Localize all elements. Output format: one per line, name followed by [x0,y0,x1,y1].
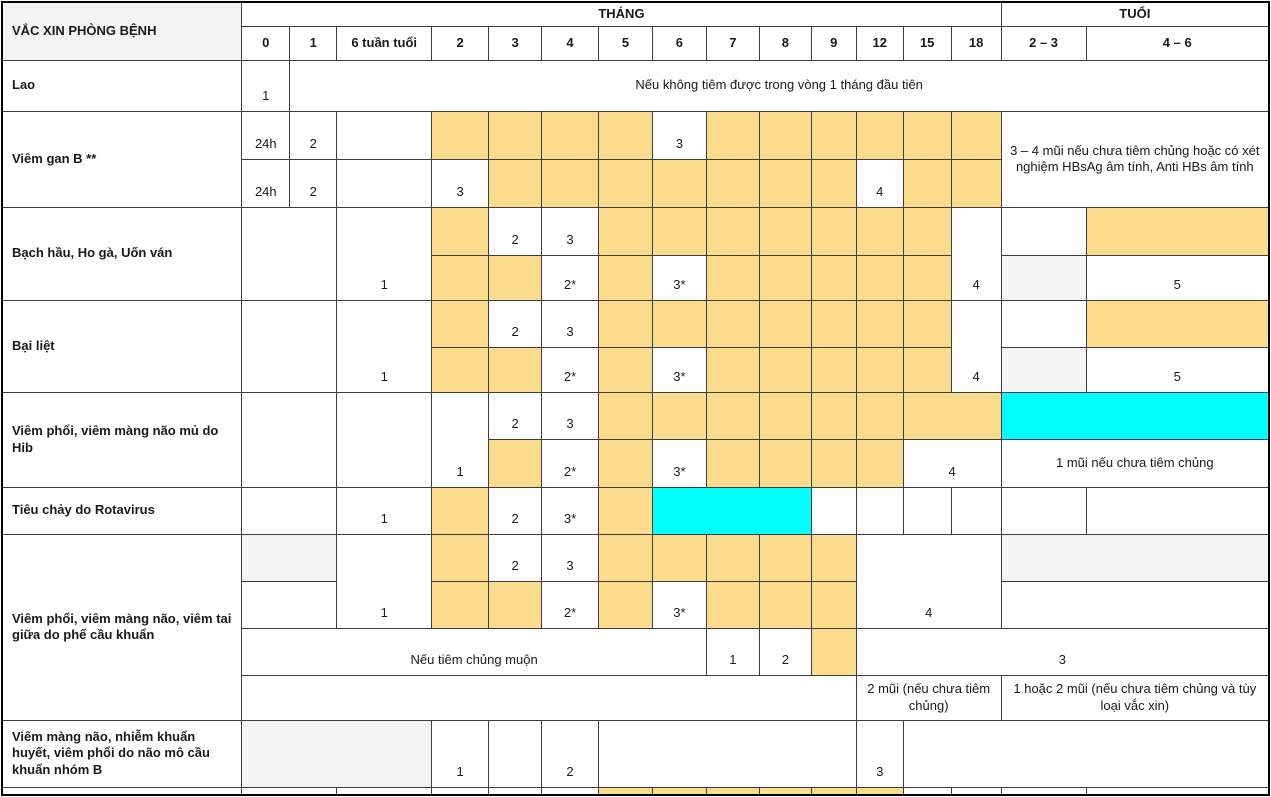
cell-vgb-a-9 [706,111,759,159]
cell-bailiet-a-4: 2 [489,300,542,347]
cell-phecau-b-2 [489,581,542,628]
cell-bailiet-a-15 [1086,300,1269,347]
cell-phecau-b-4 [599,581,653,628]
cell-bailiet-a-12 [903,300,951,347]
cell-rota-9 [856,487,903,534]
cell-bailiet-b-1 [489,347,542,392]
cell-hib-b-0 [489,439,542,487]
cell-vgb-b-2 [337,159,432,207]
cell-hib-a-8 [706,392,759,439]
cell-cutoff-6 [599,787,653,795]
cell-bailiet-b-2: 2* [542,347,599,392]
cell-bachhau-b-0 [432,255,489,300]
cell-bailiet-a-10 [811,300,856,347]
cell-vgb-b-10 [811,159,856,207]
cell-hib-b-7 [856,439,903,487]
cell-phecau-b-6 [706,581,759,628]
cell-cutoff-3 [432,787,489,795]
cell-vgb-b-6 [599,159,653,207]
cell-bailiet-b-7 [811,347,856,392]
cell-bailiet-a-1 [242,300,337,392]
highlight-hib-catchup [1001,392,1269,439]
cell-bachhau-b-7 [811,255,856,300]
cell-phecau-a-9 [759,534,811,581]
cell-bachhau-a-11 [856,207,903,255]
header-6-weeks: 6 tuần tuổi [337,26,432,60]
cell-cutoff-2 [337,787,432,795]
cell-bailiet-a-2: 1 [337,300,432,392]
cell-bailiet-a-5: 3 [542,300,599,347]
cell-rota-4: 2 [489,487,542,534]
cell-naomocau-b-4: 2 [542,720,599,787]
row-label-rotavirus: Tiêu chảy do Rotavirus [2,487,242,534]
cell-vgb-a-3 [337,111,432,159]
note-hib: 1 mũi nếu chưa tiêm chủng [1001,439,1269,487]
cell-phecau-d-0 [242,675,856,720]
header-month-6: 6 [652,26,706,60]
cell-hib-b-1: 2* [542,439,599,487]
header-vaccine-column: VẮC XIN PHÒNG BỆNH [2,2,242,60]
cell-rota-3 [432,487,489,534]
row-label-bai-liet: Bại liệt [2,300,242,392]
cell-bailiet-b-9 [903,347,951,392]
cell-phecau-b-3: 2* [542,581,599,628]
cell-hib-a-5: 3 [542,392,599,439]
cell-cutoff-10 [811,787,856,795]
cell-vgb-a-11 [811,111,856,159]
cell-bachhau-b-11: 5 [1086,255,1269,300]
cell-bachhau-a-15 [1086,207,1269,255]
cell-rota-10 [903,487,951,534]
row-label-viem-gan-b: Viêm gan B ** [2,111,242,207]
cell-bachhau-b-4: 3* [652,255,706,300]
header-group-age: TUỔI [1001,2,1269,26]
cell-rota-11 [951,487,1001,534]
note-phe-cau-2-doses: 2 mũi (nếu chưa tiêm chủng) [856,675,1001,720]
cell-hib-a-12 [903,392,1001,439]
cell-bachhau-b-6 [759,255,811,300]
cell-bachhau-a-10 [811,207,856,255]
cell-vgb-a-4 [432,111,489,159]
cell-hib-a-7 [652,392,706,439]
cell-bachhau-b-3 [599,255,653,300]
cell-vgb-b-4 [489,159,542,207]
header-month-5: 5 [599,26,653,60]
cell-hib-a-4: 2 [489,392,542,439]
cell-hib-a-2 [337,392,432,487]
cell-bailiet-a-8 [706,300,759,347]
cell-cutoff-9 [759,787,811,795]
cell-bailiet-b-5 [706,347,759,392]
row-label-hib: Viêm phổi, viêm màng não mủ do Hib [2,392,242,487]
note-phe-cau-late: Nếu tiêm chủng muộn [242,628,707,675]
cell-hib-a-9 [759,392,811,439]
note-lao: Nếu không tiêm được trong vòng 1 tháng đ… [290,60,1269,111]
cell-cutoff-1 [242,787,337,795]
row-label-phe-cau: Viêm phổi, viêm màng não, viêm tai giữa … [2,534,242,720]
cell-hib-a-1 [242,392,337,487]
cell-vgb-b-1: 2 [290,159,337,207]
cell-phecau-a-8 [706,534,759,581]
cell-vgb-a-7 [599,111,653,159]
vaccination-schedule-table: VẮC XIN PHÒNG BỆNHTHÁNGTUỔI016 tuần tuổi… [1,1,1270,796]
cell-naomocau-b-1 [242,720,432,787]
cell-vgb-a-5 [489,111,542,159]
cell-bailiet-a-14 [1001,300,1086,347]
cell-phecau-a-10 [811,534,856,581]
cell-naomocau-b-5 [599,720,857,787]
cell-phecau-c-2: 2 [759,628,811,675]
cell-bachhau-a-3 [432,207,489,255]
cell-bachhau-a-13: 4 [951,207,1001,300]
cell-hib-b-3: 3* [652,439,706,487]
cell-cutoff-12 [903,787,951,795]
cell-phecau-a-11: 4 [856,534,1001,628]
cell-rota-1 [242,487,337,534]
cell-vgb-b-0: 24h [242,159,290,207]
row-label-lao: Lao [2,60,242,111]
cell-cutoff-13 [951,787,1001,795]
cell-vgb-b-3: 3 [432,159,489,207]
cell-rota-6 [599,487,653,534]
cell-hib-a-10 [811,392,856,439]
cell-phecau-b-1 [432,581,489,628]
cell-hib-a-3: 1 [432,392,489,487]
header-age-4-6: 4 – 6 [1086,26,1269,60]
cell-bailiet-b-11: 5 [1086,347,1269,392]
cell-phecau-a-5: 3 [542,534,599,581]
cell-vgb-b-8 [706,159,759,207]
cell-bailiet-b-3 [599,347,653,392]
cell-bailiet-b-10 [1001,347,1086,392]
cell-cutoff-8 [706,787,759,795]
vaccination-schedule-page: VẮC XIN PHÒNG BỆNHTHÁNGTUỔI016 tuần tuổi… [1,1,1270,796]
cell-phecau-c-4: 3 [856,628,1269,675]
cell-hib-a-11 [856,392,903,439]
header-month-4: 4 [542,26,599,60]
cell-rota-2: 1 [337,487,432,534]
highlight-rota-window [652,487,811,534]
cell-bailiet-b-4: 3* [652,347,706,392]
cell-cutoff-0 [2,787,242,795]
header-month-1: 1 [290,26,337,60]
cell-phecau-b-8 [811,581,856,628]
cell-cutoff-4 [489,787,542,795]
cell-bachhau-a-8 [706,207,759,255]
cell-naomocau-b-7 [903,720,1269,787]
header-month-0: 0 [242,26,290,60]
cell-bachhau-b-10 [1001,255,1086,300]
cell-vgb-b-9 [759,159,811,207]
cell-phecau-a-2: 1 [337,534,432,628]
cell-rota-12 [1001,487,1086,534]
cell-phecau-a-12 [1001,534,1269,581]
header-month-2: 2 [432,26,489,60]
header-month-18: 18 [951,26,1001,60]
cell-bailiet-a-3 [432,300,489,347]
cell-hib-b-8: 4 [903,439,1001,487]
cell-vgb-b-11: 4 [856,159,903,207]
note-phe-cau-1-2-doses: 1 hoặc 2 mũi (nếu chưa tiêm chủng và tùy… [1001,675,1269,720]
cell-cutoff-11 [856,787,903,795]
header-month-3: 3 [489,26,542,60]
cell-bachhau-a-2: 1 [337,207,432,300]
cell-naomocau-b-6: 3 [856,720,903,787]
cell-hib-a-6 [599,392,653,439]
cell-bachhau-b-5 [706,255,759,300]
cell-phecau-b-9 [1001,581,1269,628]
cell-bachhau-b-1 [489,255,542,300]
cell-phecau-b-0 [242,581,337,628]
cell-vgb-b-13 [951,159,1001,207]
cell-bachhau-a-6 [599,207,653,255]
cell-vgb-a-13 [903,111,951,159]
cell-bailiet-b-8 [856,347,903,392]
cell-bachhau-a-5: 3 [542,207,599,255]
cell-vgb-a-12 [856,111,903,159]
cell-bachhau-b-2: 2* [542,255,599,300]
cell-bachhau-b-8 [856,255,903,300]
cell-bailiet-a-11 [856,300,903,347]
header-month-12: 12 [856,26,903,60]
cell-bachhau-a-9 [759,207,811,255]
header-month-8: 8 [759,26,811,60]
cell-vgb-a-6 [542,111,599,159]
cell-naomocau-b-3 [489,720,542,787]
cell-cutoff-5 [542,787,599,795]
cell-vgb-a-10 [759,111,811,159]
cell-bachhau-a-12 [903,207,951,255]
cell-rota-5: 3* [542,487,599,534]
cell-bailiet-a-6 [599,300,653,347]
cell-cutoff-15 [1086,787,1269,795]
cell-bailiet-a-9 [759,300,811,347]
cell-rota-13 [1086,487,1269,534]
header-month-9: 9 [811,26,856,60]
header-group-months: THÁNG [242,2,1001,26]
cell-hib-b-4 [706,439,759,487]
cell-vgb-b-12 [903,159,951,207]
cell-phecau-a-7 [652,534,706,581]
cell-bachhau-a-14 [1001,207,1086,255]
cell-naomocau-b-2: 1 [432,720,489,787]
cell-vgb-a-8: 3 [652,111,706,159]
cell-phecau-a-6 [599,534,653,581]
header-month-7: 7 [706,26,759,60]
row-label-bach-hau: Bạch hầu, Ho gà, Uốn ván [2,207,242,300]
cell-bailiet-a-7 [652,300,706,347]
cell-vgb-a-1: 24h [242,111,290,159]
cell-phecau-c-1: 1 [706,628,759,675]
cell-vgb-b-5 [542,159,599,207]
cell-bachhau-a-4: 2 [489,207,542,255]
cell-bailiet-a-13: 4 [951,300,1001,392]
cell-bachhau-a-7 [652,207,706,255]
cell-rota-8 [811,487,856,534]
cell-bachhau-a-1 [242,207,337,300]
cell-hib-b-6 [811,439,856,487]
cell-bailiet-b-0 [432,347,489,392]
row-label-nao-mo-cau-b: Viêm màng não, nhiễm khuẩn huyết, viêm p… [2,720,242,787]
header-month-15: 15 [903,26,951,60]
cell-phecau-b-5: 3* [652,581,706,628]
cell-phecau-a-3 [432,534,489,581]
cell-bailiet-b-6 [759,347,811,392]
cell-cutoff-14 [1001,787,1086,795]
cell-hib-b-2 [599,439,653,487]
cell-phecau-a-1 [242,534,337,581]
cell-phecau-c-3 [811,628,856,675]
cell-phecau-b-7 [759,581,811,628]
header-age-2-3: 2 – 3 [1001,26,1086,60]
cell-bachhau-b-9 [903,255,951,300]
cell-cutoff-7 [652,787,706,795]
cell-vgb-a-14 [951,111,1001,159]
cell-hib-b-5 [759,439,811,487]
cell-vgb-b-7 [652,159,706,207]
lao-dose-1: 1 [242,60,290,111]
cell-phecau-a-4: 2 [489,534,542,581]
note-hep-b: 3 – 4 mũi nếu chưa tiêm chủng hoặc có xé… [1001,111,1269,207]
cell-vgb-a-2: 2 [290,111,337,159]
